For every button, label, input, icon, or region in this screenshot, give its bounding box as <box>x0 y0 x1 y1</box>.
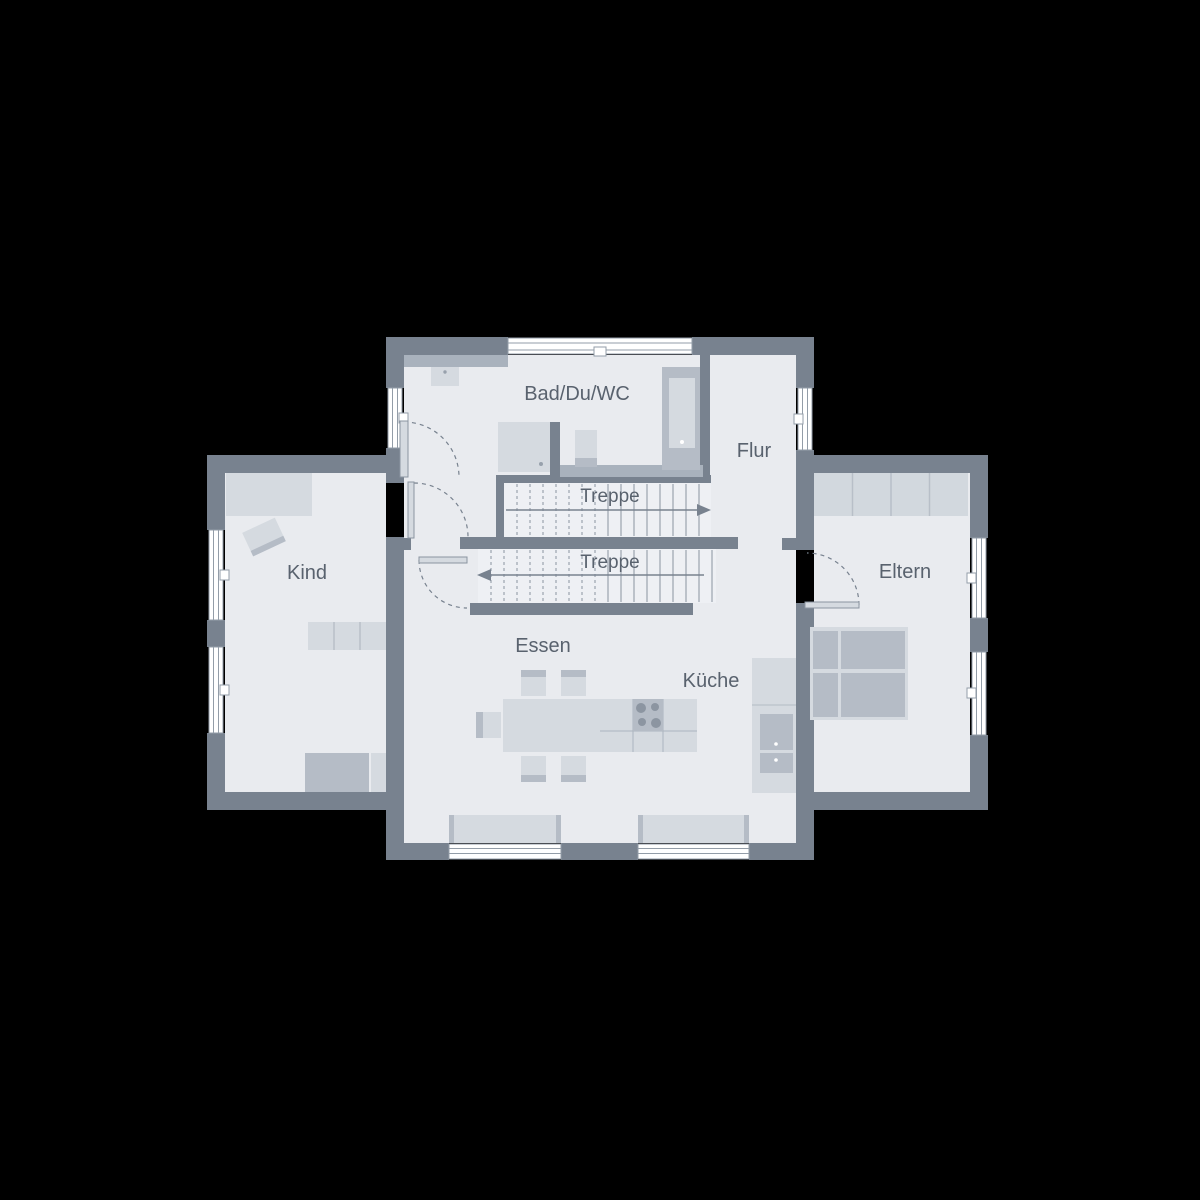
window-bottom-1 <box>449 844 561 859</box>
sink-drain-icon <box>443 370 446 373</box>
label-parents-room: Eltern <box>879 561 931 583</box>
toilet-tank <box>575 430 597 458</box>
bed-kind <box>305 753 369 792</box>
wall-bottom-b <box>561 843 638 860</box>
window-handle-icon <box>967 688 976 698</box>
wall-bottom-c <box>749 843 814 860</box>
wall-left-a <box>386 337 404 388</box>
window-sill-1 <box>449 815 561 843</box>
window-handle-icon <box>220 685 229 695</box>
door-leaf-essen <box>419 557 467 563</box>
toilet-bowl <box>575 458 597 467</box>
wall-flur <box>700 355 710 477</box>
burner-icon <box>651 703 659 711</box>
wall-kind-bottom <box>207 792 404 810</box>
door-leaf-eltern <box>805 602 859 608</box>
wall-stub-kind <box>404 538 411 550</box>
wardrobe-kind <box>226 473 312 516</box>
bed-kind-pillow <box>371 753 386 792</box>
window-handle-icon <box>794 414 803 424</box>
chair-back <box>521 670 546 677</box>
sill-post <box>449 815 454 843</box>
wall-stair-left <box>496 483 504 537</box>
door-leaf-bath <box>400 421 408 477</box>
chair-back <box>561 670 586 677</box>
label-kitchen: Küche <box>683 670 740 692</box>
chair-back <box>521 775 546 782</box>
wall-eltern-right-a <box>970 455 988 538</box>
bathtub-inner <box>669 378 695 448</box>
kitchen-appliance <box>760 753 793 773</box>
door-leaf-kind <box>408 482 414 538</box>
sink <box>431 367 459 386</box>
wall-kind-top <box>207 455 404 473</box>
dresser-kind <box>308 622 386 650</box>
window-handle-icon <box>967 573 976 583</box>
wall-stair-middle <box>460 537 738 549</box>
bed-pillow <box>813 673 838 717</box>
wall-top-left <box>386 337 508 355</box>
wall-top-right <box>692 337 814 355</box>
bathtub-drain-icon <box>680 440 684 444</box>
label-dining: Essen <box>515 635 571 657</box>
sill-post <box>556 815 561 843</box>
sill-post <box>744 815 749 843</box>
oven-handle-icon <box>774 742 778 746</box>
wall-kind-left-b <box>207 620 225 647</box>
floor-plan-canvas: Bad/Du/WC Flur Treppe Treppe Kind Eltern… <box>0 0 1200 1200</box>
bed-mattress <box>841 673 905 717</box>
wall-right-a <box>796 337 814 388</box>
appliance-handle-icon <box>774 758 778 762</box>
dining-table <box>503 699 600 752</box>
window-handle-icon <box>594 347 606 356</box>
vanity-counter <box>404 355 508 367</box>
burner-icon <box>636 703 646 713</box>
chair-back <box>476 712 483 738</box>
wall-bottom-a <box>386 843 449 860</box>
bed-pillow <box>813 631 838 669</box>
burner-icon <box>638 718 646 726</box>
wall-stub-eltern <box>782 538 796 550</box>
sill-post <box>638 815 643 843</box>
wall-eltern-top <box>796 455 988 473</box>
wall-stair-bottom <box>470 603 693 615</box>
wall-eltern-right-b <box>970 618 988 652</box>
label-hallway: Flur <box>737 440 772 462</box>
window-handle-icon <box>220 570 229 580</box>
label-stair-lower: Treppe <box>580 552 640 573</box>
shower-drain-icon <box>539 462 543 466</box>
label-child-room: Kind <box>287 562 327 584</box>
burner-icon <box>651 718 661 728</box>
floor-plan: Bad/Du/WC Flur Treppe Treppe Kind Eltern… <box>0 0 1200 1200</box>
wall-shower-partition <box>550 422 560 477</box>
wall-left-c <box>386 537 404 860</box>
label-stair-upper: Treppe <box>580 486 640 507</box>
wall-kind-left-a <box>207 455 225 530</box>
chair-back <box>561 775 586 782</box>
wall-eltern-bottom <box>796 792 988 810</box>
window-sill-2 <box>638 815 749 843</box>
window-bottom-2 <box>638 844 749 859</box>
bed-mattress <box>841 631 905 669</box>
label-bathroom: Bad/Du/WC <box>524 383 630 405</box>
